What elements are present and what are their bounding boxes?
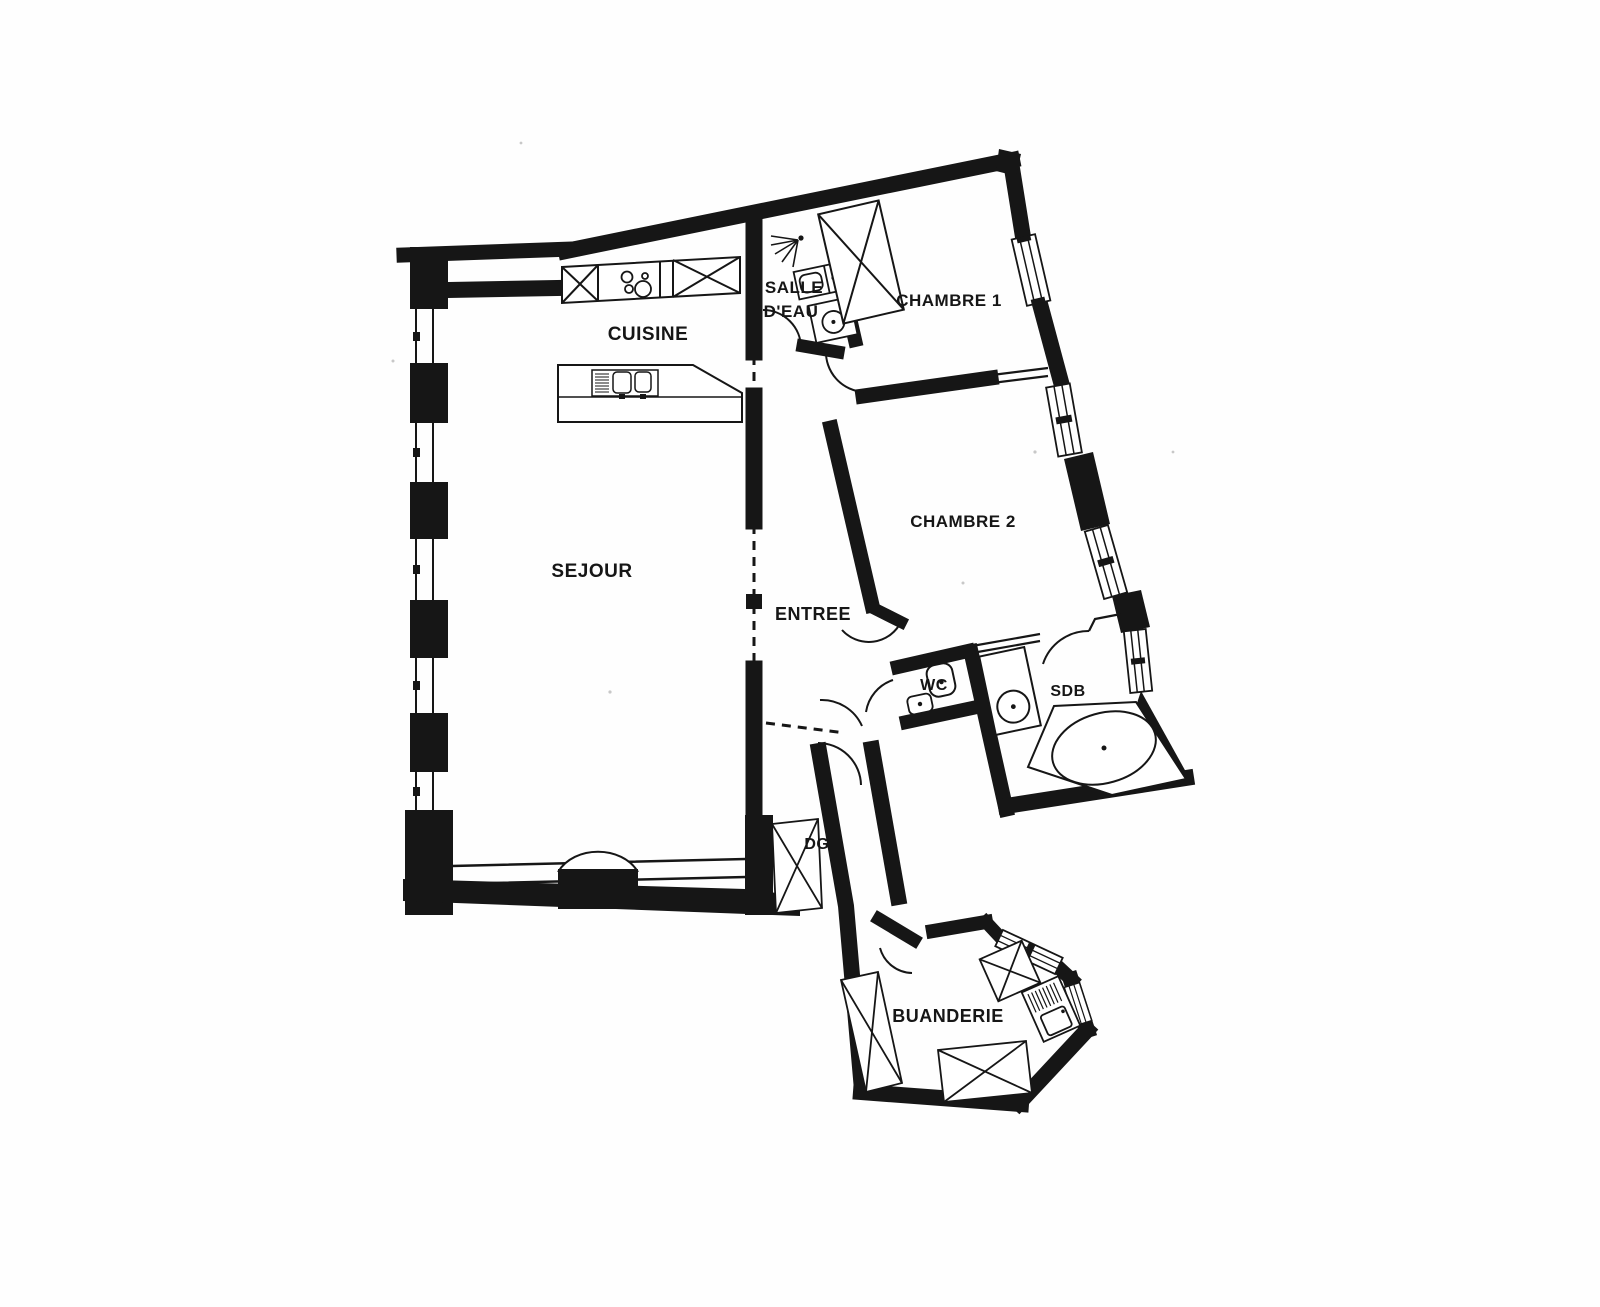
room-label-sdb: SDB [1050,683,1085,700]
dashed-separations [754,356,845,733]
sdb-door-arc [1043,631,1089,664]
shower-spray-icon [771,235,804,267]
room-label-chambre1: CHAMBRE 1 [896,291,1002,310]
entree-door-arc [820,700,862,726]
kitchen-island [558,365,742,422]
bathtub-icon [1028,700,1186,797]
room-label-sejour: SEJOUR [551,561,632,582]
room-label-dgt: DGT [804,836,839,853]
room-label-buanderie: BUANDERIE [892,1006,1004,1026]
room-label-wc: WC [920,677,948,694]
wc-sink-icon [906,693,933,716]
room-label-entree: ENTREE [775,604,851,624]
floor-plan-svg: CUISINE SEJOUR SALLE D'EAU CHAMBRE 1 CHA… [0,0,1600,1307]
wc-door-arc [866,680,893,712]
dgt-cabinet [772,819,822,913]
kitchen-counter [562,257,740,303]
room-label-chambre2: CHAMBRE 2 [910,512,1016,531]
sejour-bottom-wall [403,852,800,916]
buanderie-door-arc [880,948,912,973]
room-label-salle-deau-line1: SALLE [765,278,823,297]
drainer-icon [595,374,609,392]
floor-plan-page: CUISINE SEJOUR SALLE D'EAU CHAMBRE 1 CHA… [0,0,1600,1307]
room-label-cuisine: CUISINE [608,324,689,345]
chambre2-door-arc [842,622,901,642]
room-label-salle-deau-line2: D'EAU [764,302,819,321]
